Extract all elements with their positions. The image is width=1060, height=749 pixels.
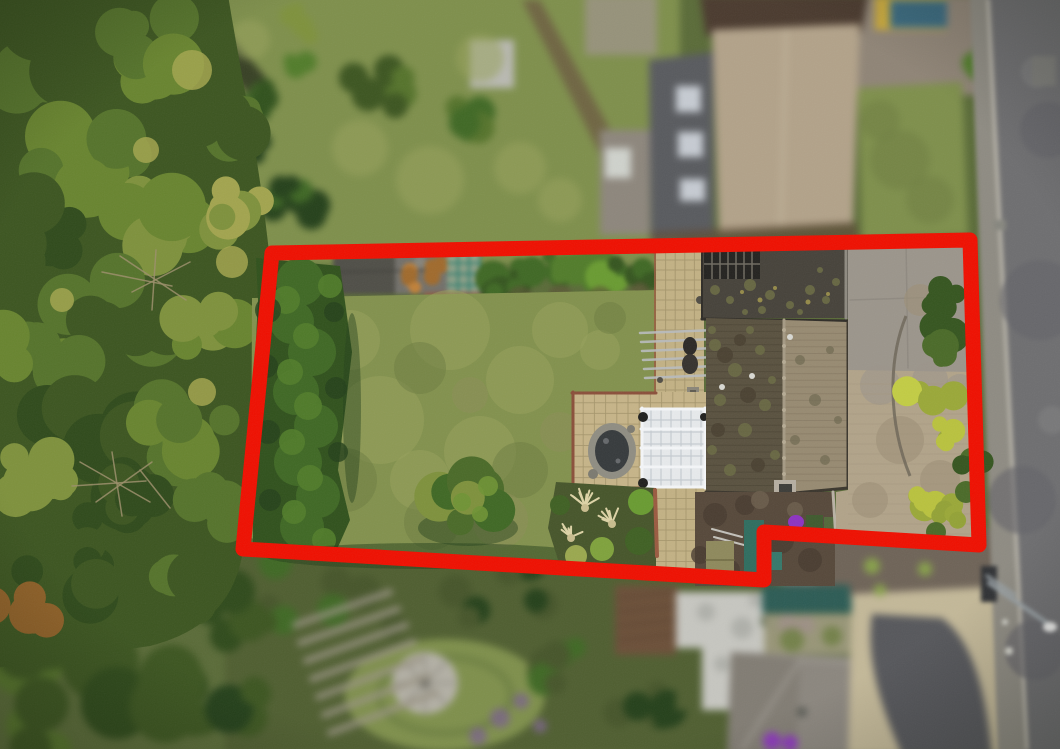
aerial-photo-canvas	[0, 0, 1060, 749]
photo-overlay	[0, 0, 1060, 749]
vignette	[0, 0, 1060, 749]
aerial-photo	[0, 0, 1060, 749]
